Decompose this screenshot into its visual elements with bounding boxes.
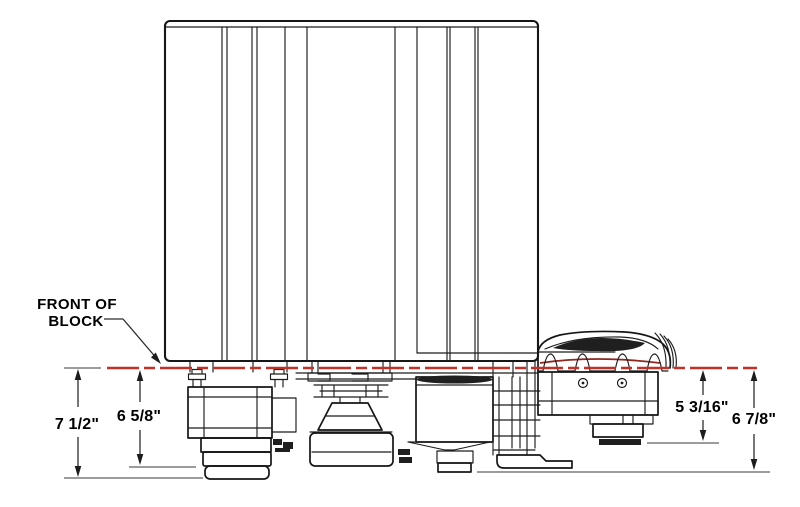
dimension-5-3-16: 5 3/16" [647,370,729,443]
dim-6-7-8-arrow-up [751,370,758,381]
dim-7-1-2-arrow-down [75,466,82,477]
pump-base [593,424,643,437]
pump-inner-red-edge [540,359,660,363]
pump-screw-right-dot [621,382,624,385]
motor-pan-lower [205,466,269,479]
dim-6-5-8-text: 6 5/8" [117,408,161,425]
engine-block [165,21,538,379]
dimension-6-7-8: 6 7/8" [477,370,776,472]
pump-dark-swoosh [553,338,645,351]
lattice-lines [493,377,540,455]
dim-6-5-8-arrow-down [137,454,144,465]
center-rail-blocks [318,374,368,381]
bolt-left [189,370,206,388]
dim-5-3-16-text: 5 3/16" [675,399,728,416]
front-of-block-label-line1: FRONT OF [37,296,117,313]
drawing-canvas: FRONT OF BLOCK 7 1/2" 6 5/8" 5 3/16" 6 7… [0,0,800,507]
front-of-block-label-line2: BLOCK [48,313,103,330]
dim-7-1-2-arrow-up [75,369,82,380]
motor-mount-plate [201,438,271,452]
engine-dimension-diagram: FRONT OF BLOCK 7 1/2" 6 5/8" 5 3/16" 6 7… [0,0,800,507]
pump-screw-left-dot [582,382,585,385]
block-outline [165,21,538,361]
balancer-top-shade [417,376,493,384]
dim-6-7-8-text: 6 7/8" [732,411,776,428]
dim-5-3-16-arrow-up [700,370,707,381]
pump-lower-box-lines [538,372,658,415]
center-accessory-assembly [308,373,493,472]
dim-7-1-2-text: 7 1/2" [55,416,99,433]
water-pump-assembly [538,331,676,445]
leader-line [104,319,158,360]
pump-lower-box [538,372,658,415]
motor-dark-fittings [273,439,293,452]
block-panel-lines [222,27,478,361]
balancer-cylinder [416,377,493,442]
center-pan [310,433,393,466]
bolt-right [271,370,288,388]
pulley-stack-lines [314,385,388,403]
bracket-foot [497,455,572,468]
motor-side-attachment [272,398,296,432]
center-dark-fittings [398,449,412,463]
dimension-6-5-8: 6 5/8" [117,370,196,467]
left-accessory-assembly [188,370,296,480]
front-of-block-callout: FRONT OF BLOCK [37,296,161,364]
pump-base-dark [599,439,641,445]
center-foot-lower [438,463,471,472]
right-bracket-lattice [493,377,572,468]
balancer-lower-taper [408,442,490,450]
center-foot-upper [437,451,473,463]
dim-6-7-8-arrow-down [751,459,758,470]
dim-6-5-8-arrow-up [137,370,144,381]
pump-step-plate [590,415,653,424]
pump-step-lines [623,415,633,424]
motor-pan-upper [203,452,271,466]
motor-body [188,387,272,438]
motor-body-lines [188,387,272,438]
dim-5-3-16-arrow-down [700,430,707,441]
